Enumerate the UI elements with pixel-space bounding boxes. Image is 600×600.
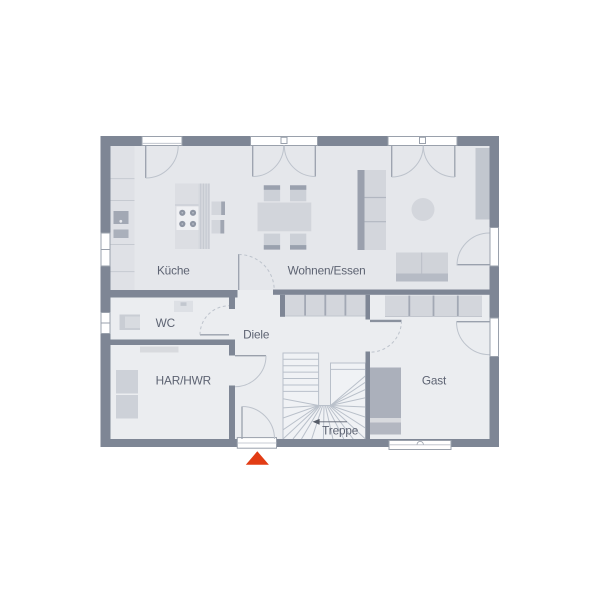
svg-text:Wohnen/Essen: Wohnen/Essen — [288, 264, 366, 278]
svg-text:Küche: Küche — [157, 264, 190, 278]
svg-text:Gast: Gast — [422, 374, 447, 388]
svg-text:Diele: Diele — [243, 328, 270, 342]
svg-text:Treppe: Treppe — [322, 424, 359, 438]
svg-text:WC: WC — [156, 316, 176, 330]
svg-text:HAR/HWR: HAR/HWR — [156, 374, 211, 388]
